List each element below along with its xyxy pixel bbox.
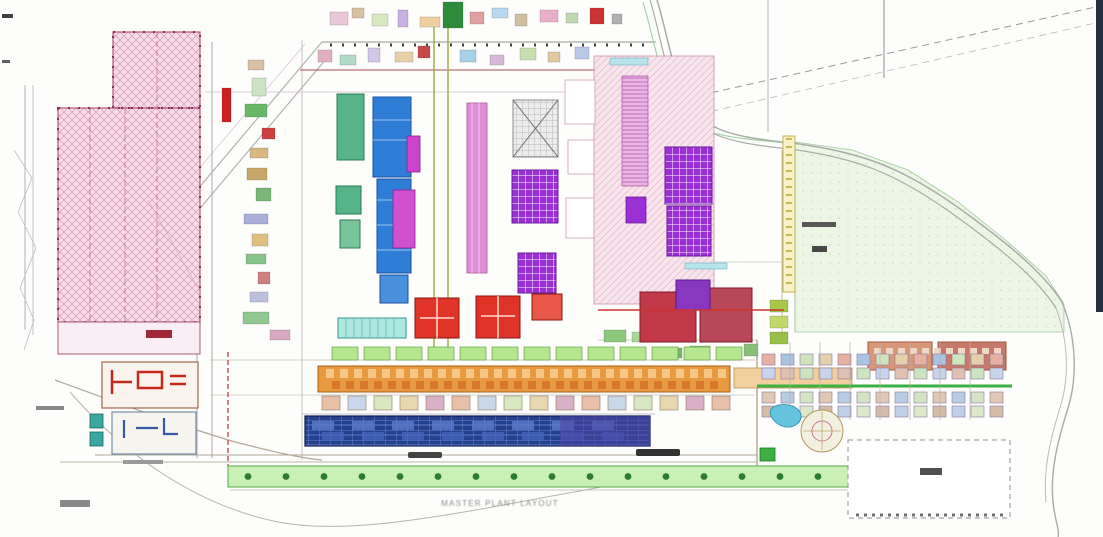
green-buffer-dots-7 <box>511 473 518 480</box>
orange-band-cells-bottom-2 <box>360 381 368 389</box>
green-strip-row-9 <box>620 347 646 360</box>
mid-left-blocks-10 <box>246 254 266 264</box>
orange-band-cells-top-19 <box>592 369 600 378</box>
orange-band-cells-bottom-17 <box>570 381 578 389</box>
green-buffer-dots-0 <box>245 473 252 480</box>
township-bldg-ticks-4 <box>922 348 929 354</box>
reservoir-upper <box>113 32 200 108</box>
purple-unit-2 <box>518 253 556 293</box>
navy-light-cells-bottom-4 <box>482 432 504 441</box>
orange-band-cells-bottom-13 <box>514 381 522 389</box>
mid-left-blocks-4 <box>262 128 275 139</box>
orange-band-cells-top-16 <box>550 369 558 378</box>
orange-band-cells-bottom-10 <box>472 381 480 389</box>
mid-left-blocks-13 <box>243 312 269 324</box>
top-strip-blocks-10 <box>566 13 578 23</box>
top-strip-blocks-3 <box>398 10 408 27</box>
green-buffer-dots-1 <box>283 473 290 480</box>
label-mark-topleft-2 <box>2 60 10 63</box>
green-strip-row-7 <box>556 347 582 360</box>
township-row-1-3 <box>819 354 832 365</box>
orange-band-cells-bottom-18 <box>584 381 592 389</box>
green-strip-row-3 <box>428 347 454 360</box>
township-bldg-ticks-2 <box>898 348 905 354</box>
orange-band-cells-bottom-7 <box>430 381 438 389</box>
mid-left-blocks-7 <box>256 188 271 201</box>
township-row-2-11 <box>971 368 984 379</box>
green-strip-row-5 <box>492 347 518 360</box>
upper-plant-blocks-6 <box>490 55 504 65</box>
orange-band-cells-top-23 <box>648 369 656 378</box>
orange-band-cells-bottom-9 <box>458 381 466 389</box>
mid-left-blocks-14 <box>270 330 290 340</box>
mid-left-blocks-2 <box>252 78 266 96</box>
top-strip-blocks-2 <box>372 14 388 26</box>
green-strip-row-12 <box>716 347 742 360</box>
upper-plant-blocks-3 <box>395 52 413 62</box>
east-green-blocks-8 <box>770 332 788 344</box>
magenta-tank-1 <box>407 136 420 172</box>
orange-band-cells-bottom-23 <box>654 381 662 389</box>
upper-plant-blocks-2 <box>368 48 380 62</box>
township-row-2-7 <box>895 368 908 379</box>
site-plan-canvas <box>0 0 1103 537</box>
top-strip-blocks-4 <box>420 17 440 27</box>
township-row-1-12 <box>990 354 1003 365</box>
township-row-4-4 <box>838 406 851 417</box>
label-mark-topleft-1 <box>2 14 13 18</box>
green-buffer-dots-15 <box>815 473 822 480</box>
township-row-4-8 <box>914 406 927 417</box>
navy-purple-segment <box>560 416 650 446</box>
orange-band-cells-bottom-19 <box>598 381 606 389</box>
township-row-2-3 <box>819 368 832 379</box>
top-strip-blocks-11 <box>590 8 604 24</box>
orange-band-cells-top-5 <box>396 369 404 378</box>
navy-light-cells-top-0 <box>312 421 334 430</box>
green-buffer-dots-9 <box>587 473 594 480</box>
township-bldg-ticks-9 <box>982 348 989 354</box>
township-row-3-5 <box>857 392 870 403</box>
township-row-3-6 <box>876 392 889 403</box>
township-bldg-ticks-3 <box>910 348 917 354</box>
cyan-road-label-1 <box>610 58 648 65</box>
navy-light-cells-top-3 <box>432 421 454 430</box>
orchid-strip-2 <box>622 76 648 186</box>
shed-outline-3 <box>566 198 594 238</box>
orange-band-cells-top-7 <box>424 369 432 378</box>
orange-band-cells-bottom-12 <box>500 381 508 389</box>
green-strip-row-4 <box>460 347 486 360</box>
green-strip-row-8 <box>588 347 614 360</box>
green-strip-row-6 <box>524 347 550 360</box>
mixed-block-row-5 <box>452 396 470 410</box>
mixed-block-row-3 <box>400 396 418 410</box>
navy-light-cells-bottom-2 <box>402 432 424 441</box>
green-buffer-dots-10 <box>625 473 632 480</box>
mixed-block-row-11 <box>608 396 626 410</box>
township-row-3-7 <box>895 392 908 403</box>
mixed-block-row-7 <box>504 396 522 410</box>
mixed-block-row-12 <box>634 396 652 410</box>
township-bldg-ticks-7 <box>958 348 965 354</box>
navy-light-cells-bottom-5 <box>522 432 544 441</box>
upper-plant-blocks-0 <box>318 50 332 62</box>
township-row-4-10 <box>952 406 965 417</box>
green-strip-row-2 <box>396 347 422 360</box>
mid-left-blocks-3 <box>245 104 267 117</box>
mixed-block-row-13 <box>660 396 678 410</box>
upper-plant-blocks-8 <box>548 52 560 62</box>
navy-light-cells-bottom-0 <box>322 432 344 441</box>
shed-outline-2 <box>568 140 594 174</box>
orange-band-cells-bottom-25 <box>682 381 690 389</box>
blue-powerhouse-1 <box>373 97 411 177</box>
mixed-block-row-15 <box>712 396 730 410</box>
upper-plant-blocks-4 <box>418 46 430 58</box>
empty-plot-mark <box>920 468 942 475</box>
township-row-2-12 <box>990 368 1003 379</box>
top-strip-blocks-5 <box>443 2 463 28</box>
orange-band-cells-top-9 <box>452 369 460 378</box>
township-row-1-5 <box>857 354 870 365</box>
township-row-4-12 <box>990 406 1003 417</box>
township-row-1-11 <box>971 354 984 365</box>
township-row-3-2 <box>800 392 813 403</box>
magenta-tank-2 <box>393 190 415 248</box>
orange-band-cells-bottom-0 <box>332 381 340 389</box>
orange-band-cells-top-8 <box>438 369 446 378</box>
green-strip-row-10 <box>652 347 678 360</box>
township-row-3-9 <box>933 392 946 403</box>
top-strip-blocks-0 <box>330 12 348 25</box>
township-row-1-4 <box>838 354 851 365</box>
mixed-block-row-14 <box>686 396 704 410</box>
teal-tank-2 <box>90 432 103 446</box>
township-row-2-4 <box>838 368 851 379</box>
green-buffer-dots-4 <box>397 473 404 480</box>
green-buffer-dots-14 <box>777 473 784 480</box>
township-row-4-6 <box>876 406 889 417</box>
mid-left-blocks-6 <box>247 168 267 180</box>
township-row-1-6 <box>876 354 889 365</box>
mixed-block-row-0 <box>322 396 340 410</box>
orange-band-cells-top-1 <box>340 369 348 378</box>
navy-light-cells-bottom-1 <box>362 432 384 441</box>
mixed-block-row-2 <box>374 396 392 410</box>
mid-left-blocks-0 <box>222 88 231 122</box>
upper-plant-blocks-9 <box>575 47 589 59</box>
green-buffer-dots-13 <box>739 473 746 480</box>
road-dark-dash-bottomleft <box>60 500 90 507</box>
mid-left-blocks-12 <box>250 292 268 302</box>
township-row-2-2 <box>800 368 813 379</box>
orange-band-cells-bottom-15 <box>542 381 550 389</box>
top-strip-blocks-6 <box>470 12 484 24</box>
navy-light-cells-bottom-3 <box>442 432 464 441</box>
mixed-block-row-6 <box>478 396 496 410</box>
mixed-block-row-9 <box>556 396 574 410</box>
township-row-2-9 <box>933 368 946 379</box>
reservoir-bottom-strip <box>58 322 200 354</box>
orange-band-cells-bottom-5 <box>402 381 410 389</box>
green-buffer-dots-3 <box>359 473 366 480</box>
orange-band-cells-top-0 <box>326 369 334 378</box>
township-row-3-0 <box>762 392 775 403</box>
orange-band-cells-bottom-26 <box>696 381 704 389</box>
red-unit-3 <box>532 294 562 320</box>
township-bldg-ticks-10 <box>994 348 1001 354</box>
township-row-1-7 <box>895 354 908 365</box>
township-row-2-8 <box>914 368 927 379</box>
master-plan-drawing: MASTER PLANT LAYOUT <box>0 0 1103 537</box>
plan-shapes <box>0 0 1103 537</box>
orange-band-cells-top-25 <box>676 369 684 378</box>
top-strip-blocks-12 <box>612 14 622 24</box>
dark-mark-1 <box>408 452 442 458</box>
empty-plot <box>848 440 1010 518</box>
mid-left-blocks-11 <box>258 272 270 284</box>
orange-band-cells-top-17 <box>564 369 572 378</box>
township-row-1-9 <box>933 354 946 365</box>
township-row-3-4 <box>838 392 851 403</box>
mixed-block-row-10 <box>582 396 600 410</box>
orange-band-cells-top-10 <box>466 369 474 378</box>
yellow-strip <box>783 136 795 292</box>
township-row-4-7 <box>895 406 908 417</box>
teal-building-2 <box>336 186 361 214</box>
upper-plant-blocks-7 <box>520 48 536 60</box>
township-row-4-11 <box>971 406 984 417</box>
drawing-caption: MASTER PLANT LAYOUT <box>430 499 570 508</box>
green-buffer-dots-8 <box>549 473 556 480</box>
orange-band-cells-top-3 <box>368 369 376 378</box>
green-buffer-dots-11 <box>663 473 670 480</box>
east-green-blocks-0 <box>604 330 626 342</box>
reservoir-main <box>58 108 200 322</box>
orange-band-cells-bottom-24 <box>668 381 676 389</box>
mid-left-blocks-9 <box>252 234 268 246</box>
township-bldg-ticks-1 <box>886 348 893 354</box>
orange-band-cells-top-22 <box>634 369 642 378</box>
orange-band-cells-top-24 <box>662 369 670 378</box>
purple-unit-3 <box>665 147 712 204</box>
green-strip-row-1 <box>364 347 390 360</box>
orange-band-cells-top-26 <box>690 369 698 378</box>
orange-band-cells-bottom-1 <box>346 381 354 389</box>
green-strip-row-0 <box>332 347 358 360</box>
east-green-blocks-5 <box>744 344 758 356</box>
navy-light-cells-top-4 <box>472 421 494 430</box>
label-mark-field-2 <box>812 246 827 252</box>
township-row-1-1 <box>781 354 794 365</box>
township-row-1-0 <box>762 354 775 365</box>
purple-unit-1 <box>512 170 558 223</box>
orange-band-cells-top-28 <box>718 369 726 378</box>
orange-band-cells-bottom-3 <box>374 381 382 389</box>
township-row-3-12 <box>990 392 1003 403</box>
mid-left-blocks-8 <box>244 214 268 224</box>
scan-edge-strip <box>1096 0 1103 312</box>
orange-band-cells-top-11 <box>480 369 488 378</box>
top-strip-blocks-7 <box>492 8 508 18</box>
orange-band-cells-bottom-6 <box>416 381 424 389</box>
green-buffer-dots-2 <box>321 473 328 480</box>
mid-left-blocks-5 <box>250 148 268 158</box>
label-mark-road-1 <box>36 406 64 410</box>
teal-building-1 <box>337 94 364 160</box>
purple-overlay-unit <box>676 280 710 310</box>
blue-powerhouse-3 <box>380 275 408 303</box>
navy-light-cells-top-1 <box>352 421 374 430</box>
teal-building-3 <box>340 220 360 248</box>
township-row-1-2 <box>800 354 813 365</box>
orange-band-cells-top-13 <box>508 369 516 378</box>
orange-band-cells-bottom-14 <box>528 381 536 389</box>
orange-band-cells-bottom-27 <box>710 381 718 389</box>
township-row-3-3 <box>819 392 832 403</box>
township-row-3-8 <box>914 392 927 403</box>
township-row-4-5 <box>857 406 870 417</box>
orange-band-cells-bottom-11 <box>486 381 494 389</box>
teal-tank-1 <box>90 414 103 428</box>
orange-band-cells-bottom-22 <box>640 381 648 389</box>
dark-mark-2 <box>636 449 680 456</box>
orange-band-cells-bottom-16 <box>556 381 564 389</box>
navy-light-cells-top-2 <box>392 421 414 430</box>
township-row-2-1 <box>781 368 794 379</box>
orange-band-cells-bottom-20 <box>612 381 620 389</box>
township-bldg-ticks-8 <box>970 348 977 354</box>
orchid-band <box>467 103 487 273</box>
cyan-road-label-2 <box>685 263 727 269</box>
orange-band-cells-top-2 <box>354 369 362 378</box>
orange-band-cells-top-15 <box>536 369 544 378</box>
township-row-2-10 <box>952 368 965 379</box>
orange-band-cells-top-4 <box>382 369 390 378</box>
orange-band-cells-top-6 <box>410 369 418 378</box>
orange-band-cells-bottom-21 <box>626 381 634 389</box>
orange-band-cells-top-27 <box>704 369 712 378</box>
top-strip-blocks-8 <box>515 14 527 26</box>
reservoir-bottom-mark <box>146 330 172 338</box>
purple-unit-4 <box>667 206 711 256</box>
mixed-block-row-1 <box>348 396 366 410</box>
township-row-3-10 <box>952 392 965 403</box>
upper-plant-blocks-5 <box>460 50 476 62</box>
orange-band-cells-bottom-8 <box>444 381 452 389</box>
township-bldg-ticks-6 <box>946 348 953 354</box>
top-strip-blocks-1 <box>352 8 364 18</box>
township-row-3-11 <box>971 392 984 403</box>
navy-light-cells-top-5 <box>512 421 534 430</box>
township-row-1-10 <box>952 354 965 365</box>
mixed-block-row-8 <box>530 396 548 410</box>
green-buffer-dots-12 <box>701 473 708 480</box>
shed-outline-1 <box>565 80 595 124</box>
east-green-blocks-7 <box>770 316 788 328</box>
green-strip-row-11 <box>684 347 710 360</box>
orange-band-cells-top-21 <box>620 369 628 378</box>
label-mark-field-1 <box>802 222 836 227</box>
mid-left-blocks-1 <box>248 60 264 70</box>
green-buffer-strip <box>228 466 936 487</box>
township-row-4-9 <box>933 406 946 417</box>
orange-band-cells-top-14 <box>522 369 530 378</box>
green-buffer-dots-5 <box>435 473 442 480</box>
township-row-2-0 <box>762 368 775 379</box>
green-buffer-dots-6 <box>473 473 480 480</box>
orange-band-cells-top-18 <box>578 369 586 378</box>
orange-band-cells-top-12 <box>494 369 502 378</box>
cyan-workshop <box>338 318 406 338</box>
township-row-2-6 <box>876 368 889 379</box>
mixed-block-row-4 <box>426 396 444 410</box>
township-row-2-5 <box>857 368 870 379</box>
upper-plant-blocks-1 <box>340 55 356 65</box>
orange-band-cells-top-20 <box>606 369 614 378</box>
township-row-3-1 <box>781 392 794 403</box>
orange-band-cells-bottom-4 <box>388 381 396 389</box>
label-mark-road-2 <box>123 460 163 464</box>
township-row-1-8 <box>914 354 927 365</box>
top-strip-blocks-9 <box>540 10 558 22</box>
green-square-township <box>760 448 775 461</box>
purple-unit-small <box>626 197 646 223</box>
